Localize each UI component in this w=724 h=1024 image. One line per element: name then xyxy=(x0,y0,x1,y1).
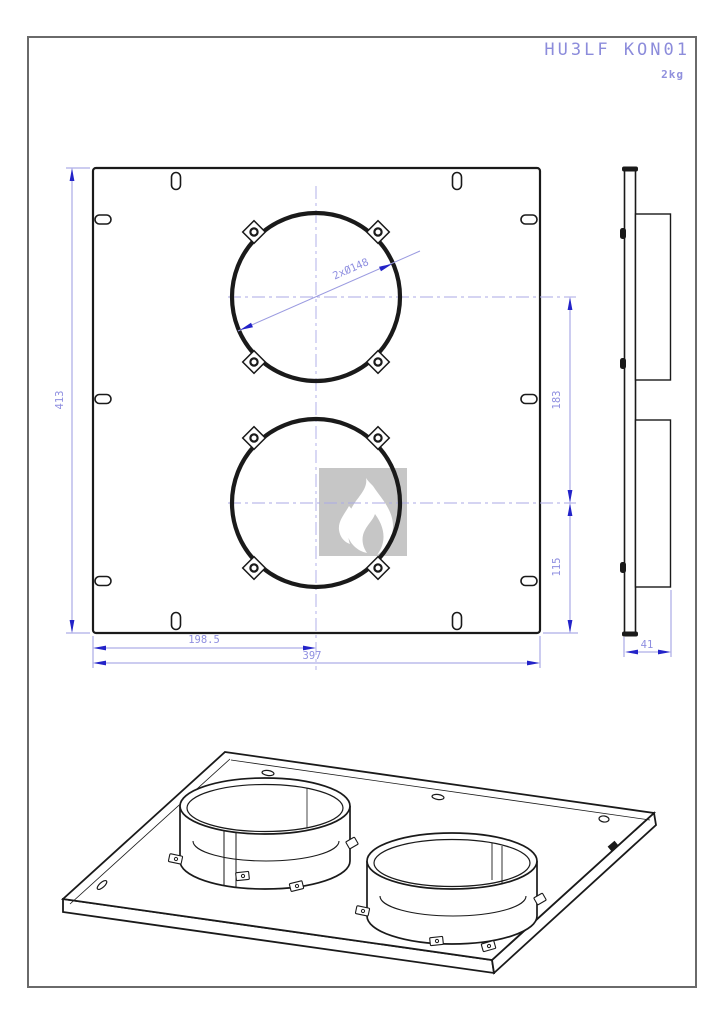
drawing-sheet: HU3LF KON01 2kg xyxy=(0,0,724,1024)
dim-flange-center-x-label: 198.5 xyxy=(188,634,220,646)
iso-left-collar xyxy=(168,778,358,892)
side-view xyxy=(620,167,671,637)
dim-plate-height-label: 413 xyxy=(54,391,66,410)
dim-total-depth-label: 41 xyxy=(641,639,654,651)
drawing-canvas: 413 198.5 397 183 115 2xØ148 41 xyxy=(0,0,724,1024)
front-view xyxy=(93,168,576,670)
isometric-view xyxy=(63,752,656,973)
watermark-logo xyxy=(319,468,407,556)
dim-flange-bottom-offset-label: 115 xyxy=(551,558,563,577)
dim-plate-width-label: 397 xyxy=(303,650,322,662)
dim-flange-spacing-label: 183 xyxy=(551,391,563,410)
